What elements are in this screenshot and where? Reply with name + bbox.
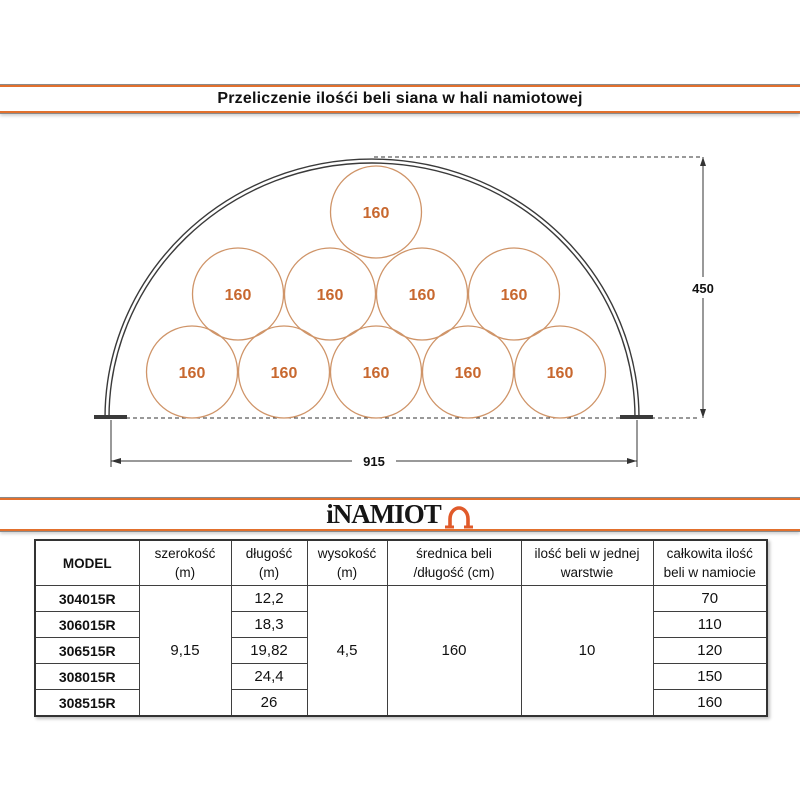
bale-label: 160 xyxy=(409,287,436,304)
calkowita-cell: 160 xyxy=(653,690,767,717)
hay-bale: 160 xyxy=(193,248,284,340)
col-header-srednica: średnica beli /długość (cm) xyxy=(387,540,521,586)
dlugosc-cell: 12,2 xyxy=(231,586,307,612)
model-cell: 306015R xyxy=(35,612,139,638)
logo-band-inner: iNAMIOT xyxy=(0,498,800,531)
dlugosc-cell: 18,3 xyxy=(231,612,307,638)
table-header-row: MODEL szerokość (m) długość (m) wysokość… xyxy=(35,540,767,586)
bale-label: 160 xyxy=(363,205,390,222)
dlugosc-cell: 19,82 xyxy=(231,638,307,664)
col-header-dlugosc: długość (m) xyxy=(231,540,307,586)
page: { "title": "Przeliczenie ilośći beli sia… xyxy=(0,0,800,800)
col-header-wysokosc: wysokość (m) xyxy=(307,540,387,586)
bale-label: 160 xyxy=(317,287,344,304)
model-cell: 306515R xyxy=(35,638,139,664)
calkowita-cell: 120 xyxy=(653,638,767,664)
tent-arch-icon xyxy=(444,502,474,530)
bale-label: 160 xyxy=(225,287,252,304)
hay-bale: 160 xyxy=(423,326,514,418)
calkowita-cell: 70 xyxy=(653,586,767,612)
bale-label: 160 xyxy=(501,287,528,304)
hay-bale: 160 xyxy=(515,326,606,418)
col-header-ilosc-warstwa: ilość beli w jednej warstwie xyxy=(521,540,653,586)
bale-label: 160 xyxy=(547,365,574,382)
calkowita-cell: 110 xyxy=(653,612,767,638)
bale-label: 160 xyxy=(179,365,206,382)
hay-bale: 160 xyxy=(147,326,238,418)
hay-bale: 160 xyxy=(285,248,376,340)
hay-bale: 160 xyxy=(377,248,468,340)
tent-foot-right xyxy=(620,415,653,419)
hay-bale: 160 xyxy=(469,248,560,340)
ilosc-merged-cell: 10 xyxy=(521,586,653,717)
spec-table: MODEL szerokość (m) długość (m) wysokość… xyxy=(34,539,768,717)
bale-label: 160 xyxy=(271,365,298,382)
model-cell: 308015R xyxy=(35,664,139,690)
dlugosc-cell: 24,4 xyxy=(231,664,307,690)
dimension-height: 450 xyxy=(686,157,720,418)
height-dimension-label: 450 xyxy=(692,281,714,296)
wysokosc-merged-cell: 4,5 xyxy=(307,586,387,717)
col-header-model: MODEL xyxy=(35,540,139,586)
width-dimension-label: 915 xyxy=(363,454,385,469)
logo-band: iNAMIOT xyxy=(0,497,800,532)
model-cell: 304015R xyxy=(35,586,139,612)
col-header-calkowita: całkowita ilość beli w namiocie xyxy=(653,540,767,586)
hay-bale: 160 xyxy=(331,326,422,418)
hay-bale: 160 xyxy=(331,166,422,258)
col-header-szerokosc: szerokość (m) xyxy=(139,540,231,586)
bale-label: 160 xyxy=(363,365,390,382)
bale-label: 160 xyxy=(455,365,482,382)
calkowita-cell: 150 xyxy=(653,664,767,690)
hay-bale: 160 xyxy=(239,326,330,418)
table-row: 304015R 9,15 12,2 4,5 160 10 70 xyxy=(35,586,767,612)
tent-foot-left xyxy=(94,415,127,419)
model-cell: 308515R xyxy=(35,690,139,717)
dimension-width: 915 xyxy=(111,420,637,471)
srednica-merged-cell: 160 xyxy=(387,586,521,717)
brand-logo-text: iNAMIOT xyxy=(326,501,441,528)
szerokosc-merged-cell: 9,15 xyxy=(139,586,231,717)
dlugosc-cell: 26 xyxy=(231,690,307,717)
